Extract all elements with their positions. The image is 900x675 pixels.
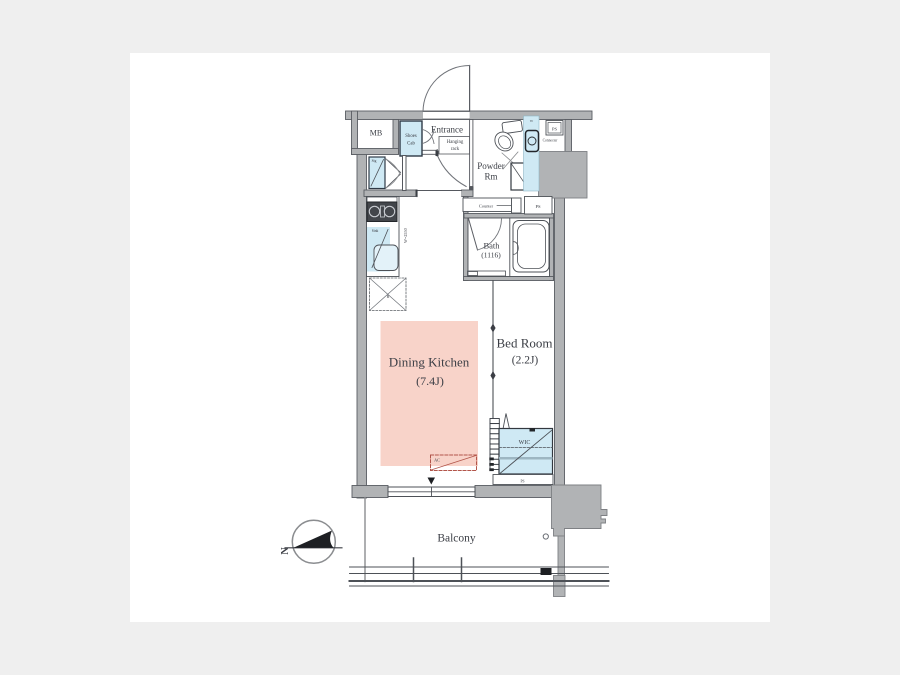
svg-text:MB: MB xyxy=(370,129,382,138)
svg-text:WIC: WIC xyxy=(519,440,531,446)
svg-text:Hanging: Hanging xyxy=(447,140,464,145)
svg-text:Bed Room: Bed Room xyxy=(497,336,553,351)
svg-text:(1116): (1116) xyxy=(481,251,501,260)
svg-text:Shoes: Shoes xyxy=(405,134,417,139)
svg-text:Cab: Cab xyxy=(407,142,415,147)
svg-text:rack: rack xyxy=(451,147,460,152)
svg-text:Entrance: Entrance xyxy=(431,125,463,135)
svg-text:Counter: Counter xyxy=(479,204,494,209)
svg-text:Sink: Sink xyxy=(372,229,379,233)
svg-text:Rm: Rm xyxy=(484,172,497,182)
svg-text:AC: AC xyxy=(434,458,440,463)
svg-text:Connecter: Connecter xyxy=(543,139,559,143)
svg-text:W=2550: W=2550 xyxy=(403,228,408,243)
svg-text:PS: PS xyxy=(521,480,525,484)
svg-text:Stg: Stg xyxy=(372,159,377,163)
svg-text:Balcony: Balcony xyxy=(437,533,476,545)
svg-text:PS: PS xyxy=(552,127,558,132)
svg-text:R: R xyxy=(387,294,390,299)
svg-text:Dining Kitchen: Dining Kitchen xyxy=(389,355,470,370)
svg-text:N: N xyxy=(280,547,291,555)
svg-text:(7.4J): (7.4J) xyxy=(416,374,444,388)
svg-text:Powder: Powder xyxy=(477,161,505,171)
svg-text:Bath: Bath xyxy=(483,241,500,251)
svg-text:PS: PS xyxy=(535,204,541,209)
svg-text:(2.2J): (2.2J) xyxy=(512,355,539,367)
